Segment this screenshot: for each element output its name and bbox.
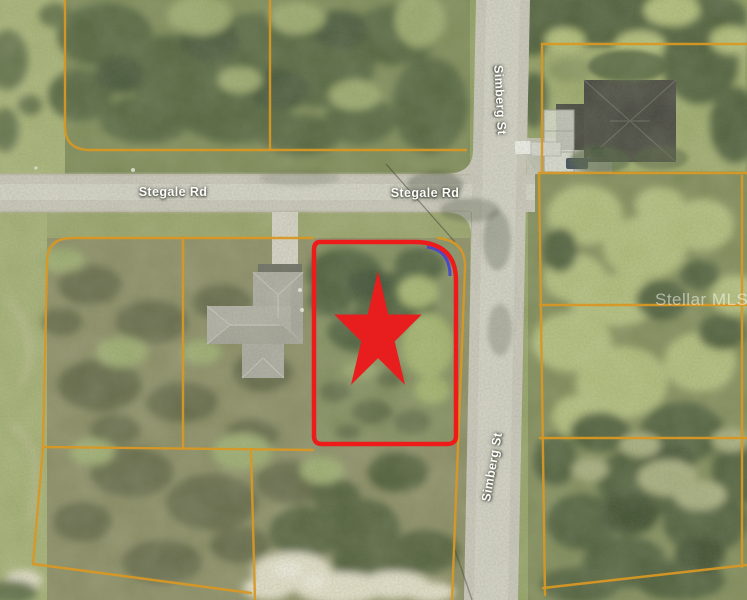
- aerial-imagery: [0, 0, 747, 600]
- aerial-map-photo: Stegale Rd Stegale Rd Simberg St Simberg…: [0, 0, 747, 600]
